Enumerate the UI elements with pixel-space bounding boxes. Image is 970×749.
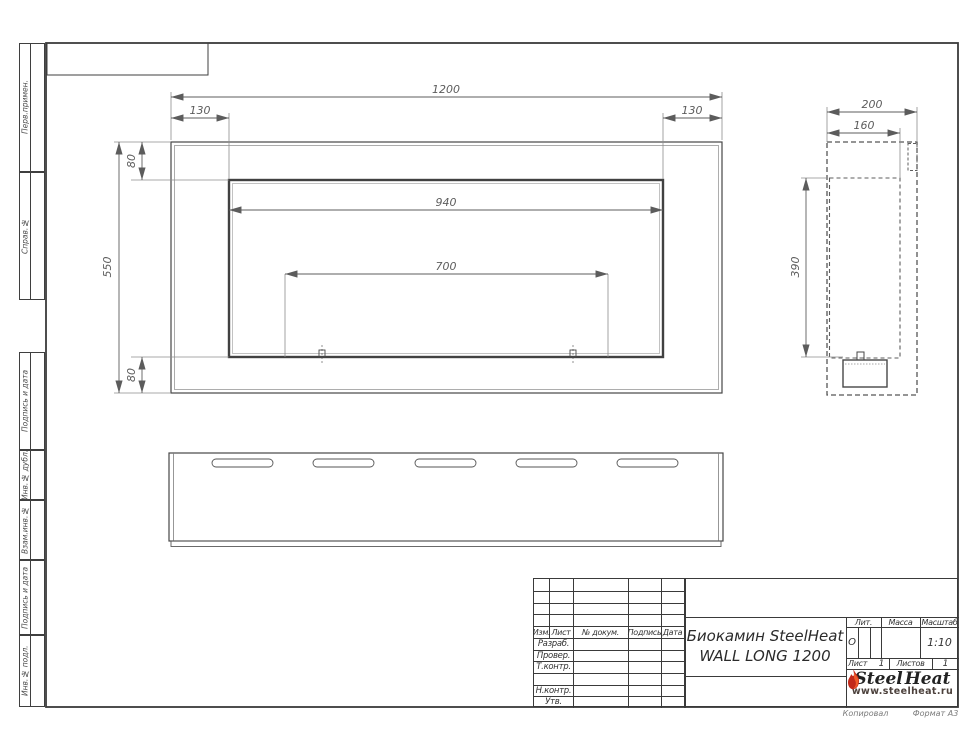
col-izm: Изм. [534, 626, 549, 638]
col-dokum: № докум. [573, 626, 628, 638]
col-data: Дата [661, 626, 684, 638]
vent-slots [212, 459, 678, 467]
row-razrab: Разраб. [534, 638, 573, 650]
burner-mount-marks [319, 345, 576, 363]
dim-front-bottom: 80 [125, 368, 138, 382]
logo-url: www.steelheat.ru [846, 686, 959, 697]
strip-box-sprav: Справ.№ [19, 172, 45, 300]
strip-label: Подпись и дата [20, 353, 30, 449]
dim-opening-width: 940 [436, 196, 457, 209]
strip-box-podpis-data-1: Подпись и дата [19, 352, 45, 450]
strip-label: Перв.примен. [20, 44, 30, 171]
dim-side-depth: 200 [862, 98, 883, 111]
burner-tab [857, 352, 864, 360]
dim-side-inner: 160 [854, 119, 875, 132]
format-note: Формат А3 [908, 709, 963, 718]
burner-box [843, 360, 887, 387]
strip-label: Взам.инв.№ [20, 501, 30, 559]
product-title: Биокамин SteelHeat WALL LONG 1200 [684, 617, 846, 676]
bottom-view [169, 453, 723, 547]
dimension-labels: 1200 130 130 940 700 80 550 80 200 160 3… [101, 83, 883, 382]
side-firebox [830, 178, 901, 358]
strip-label: Инв.№ подл. [20, 636, 30, 706]
dim-front-width: 1200 [432, 83, 460, 96]
lit-value: О [846, 627, 858, 658]
dim-front-height: 550 [101, 257, 114, 278]
drawing-sheet: 1200 130 130 940 700 80 550 80 200 160 3… [0, 0, 970, 749]
designation-box [47, 43, 208, 75]
dim-front-top: 80 [125, 154, 138, 168]
strip-box-vzam-inv: Взам.инв.№ [19, 500, 45, 560]
extension-lines [114, 92, 917, 393]
dim-front-left: 130 [190, 104, 211, 117]
row-utv: Утв. [534, 696, 573, 708]
product-title-line1: Биокамин SteelHeat [687, 627, 844, 647]
row-nkontr: Н.контр. [534, 685, 573, 696]
scale-label: Масштаб [920, 617, 959, 627]
sheets-value: 1 [932, 658, 959, 669]
sheet-label: Лист [848, 658, 874, 669]
lit-label: Лит. [846, 617, 881, 627]
dim-burner-length: 700 [436, 260, 457, 273]
strip-label: Подпись и дата [20, 561, 30, 634]
bottom-lip [171, 541, 721, 547]
row-blank [534, 673, 573, 685]
strip-label: Инв.№ дубл. [20, 451, 30, 499]
strip-box-podpis-data-2: Подпись и дата [19, 560, 45, 635]
strip-box-inv-podl: Инв.№ подл. [19, 635, 45, 707]
dim-front-right: 130 [682, 104, 703, 117]
dimension-lines [119, 97, 917, 393]
row-prover: Провер. [534, 650, 573, 661]
scale-value: 1:10 [920, 627, 959, 658]
copied-note: Копировал [838, 709, 893, 718]
product-title-line2: WALL LONG 1200 [699, 647, 830, 667]
row-tkontr: Т.контр. [534, 661, 573, 673]
sheet-value: 1 [874, 658, 889, 669]
strip-label: Справ.№ [20, 173, 30, 299]
sheets-label: Листов [889, 658, 932, 669]
mass-label: Масса [881, 617, 920, 627]
bottom-body [169, 453, 723, 541]
side-bracket [908, 144, 917, 171]
company-logo: Steel Heat www.steelheat.ru [846, 669, 959, 706]
strip-box-inv-dubl: Инв.№ дубл. [19, 450, 45, 500]
col-podpis: Подпись [628, 626, 661, 638]
col-list: Лист [549, 626, 573, 638]
title-block: Изм. Лист № докум. Подпись Дата Разраб. … [533, 578, 958, 707]
strip-box-perv-primen: Перв.примен. [19, 43, 45, 172]
dim-side-opening: 390 [789, 257, 802, 278]
